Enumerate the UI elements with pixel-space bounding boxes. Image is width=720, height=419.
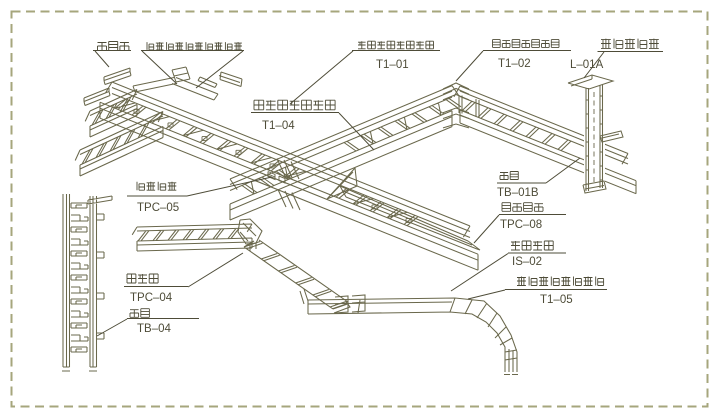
svg-text:T1–04: T1–04 [262, 120, 295, 132]
svg-text:TPC–05: TPC–05 [137, 202, 179, 214]
svg-text:T1–01: T1–01 [376, 59, 409, 71]
svg-text:TPC–04: TPC–04 [130, 292, 173, 304]
svg-text:TB–01B: TB–01B [497, 187, 539, 199]
svg-text:IS–02: IS–02 [512, 256, 542, 268]
svg-text:L–01A: L–01A [570, 59, 604, 71]
svg-text:T1–05: T1–05 [540, 294, 573, 306]
svg-text:TPC–08: TPC–08 [500, 219, 542, 231]
svg-text:T1–02: T1–02 [498, 58, 531, 70]
svg-text:TB–04: TB–04 [137, 323, 171, 335]
